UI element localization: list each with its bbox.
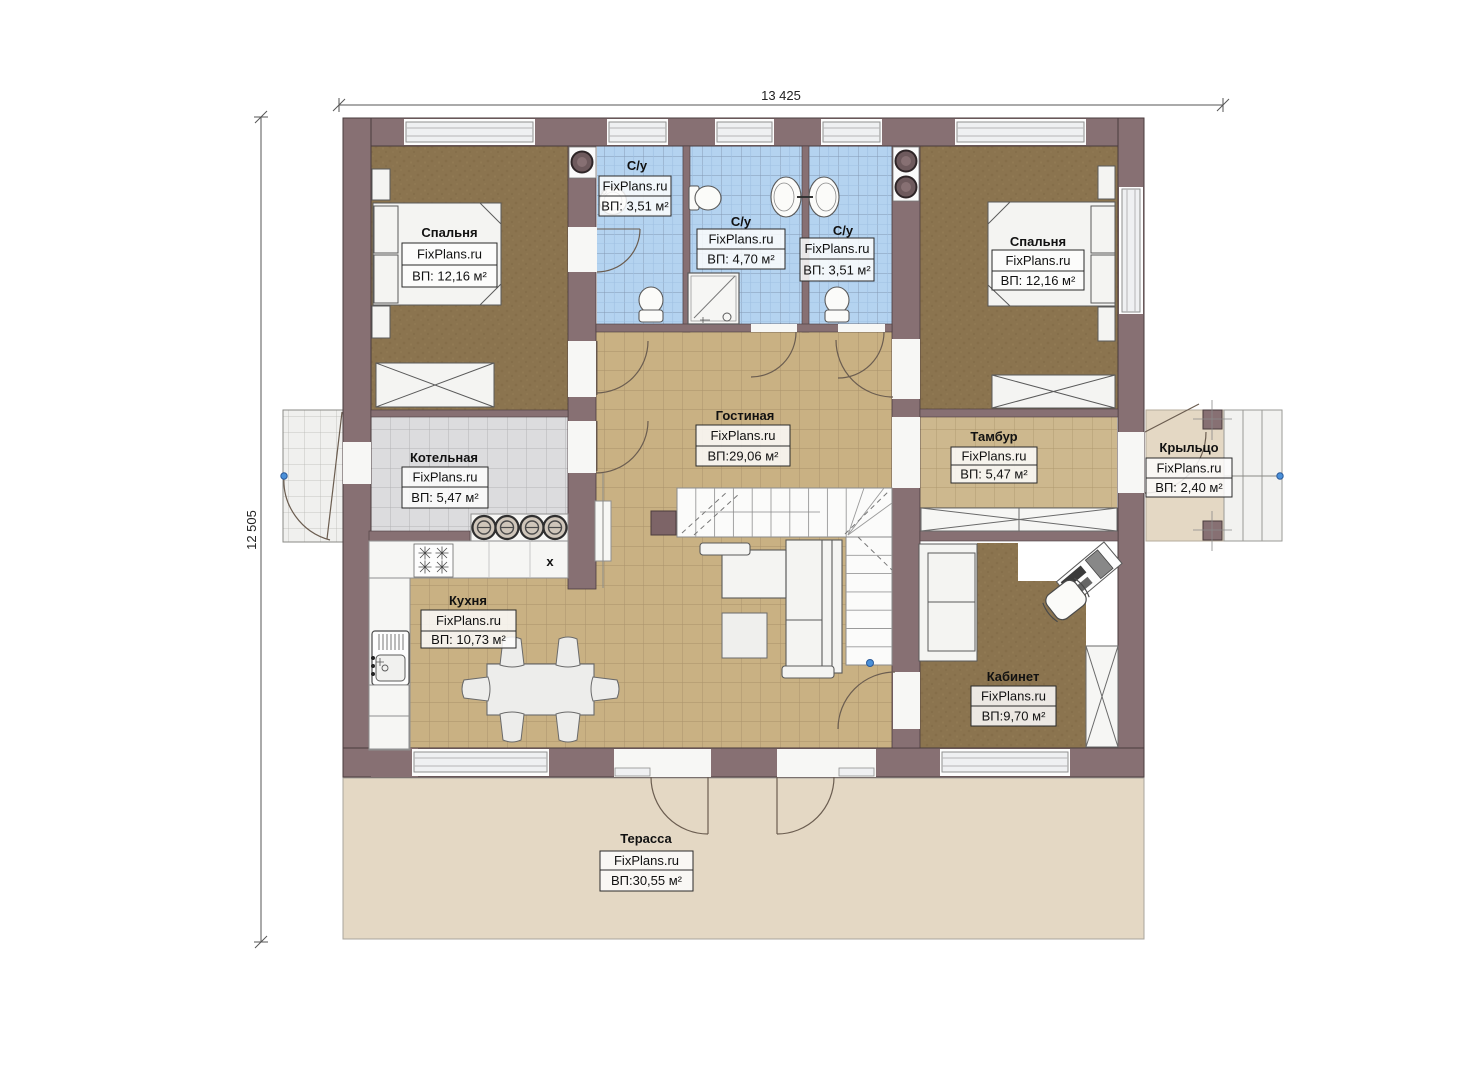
svg-text:FixPlans.ru: FixPlans.ru bbox=[417, 247, 482, 262]
svg-text:ВП:30,55 м²: ВП:30,55 м² bbox=[611, 873, 683, 888]
svg-text:Спальня: Спальня bbox=[421, 225, 477, 240]
svg-text:FixPlans.ru: FixPlans.ru bbox=[708, 232, 773, 247]
svg-text:Кабинет: Кабинет bbox=[987, 669, 1040, 684]
svg-text:ВП: 12,16 м²: ВП: 12,16 м² bbox=[1001, 273, 1076, 288]
svg-text:ВП:9,70 м²: ВП:9,70 м² bbox=[982, 709, 1046, 724]
svg-text:13 425: 13 425 bbox=[761, 88, 801, 103]
svg-text:FixPlans.ru: FixPlans.ru bbox=[614, 853, 679, 868]
svg-text:ВП: 3,51 м²: ВП: 3,51 м² bbox=[601, 199, 669, 214]
svg-text:ВП: 12,16 м²: ВП: 12,16 м² bbox=[412, 269, 487, 284]
svg-text:FixPlans.ru: FixPlans.ru bbox=[1005, 253, 1070, 268]
svg-text:ВП: 3,51 м²: ВП: 3,51 м² bbox=[803, 263, 871, 278]
svg-text:FixPlans.ru: FixPlans.ru bbox=[602, 179, 667, 194]
svg-text:12 505: 12 505 bbox=[244, 510, 259, 550]
svg-text:Терасса: Терасса bbox=[620, 831, 672, 846]
svg-text:FixPlans.ru: FixPlans.ru bbox=[981, 689, 1046, 704]
svg-text:ВП: 5,47 м²: ВП: 5,47 м² bbox=[960, 467, 1028, 482]
svg-text:ВП: 4,70 м²: ВП: 4,70 м² bbox=[707, 252, 775, 267]
svg-text:Котельная: Котельная bbox=[410, 450, 478, 465]
svg-text:Спальня: Спальня bbox=[1010, 234, 1066, 249]
svg-text:С/у: С/у bbox=[833, 223, 854, 238]
svg-text:FixPlans.ru: FixPlans.ru bbox=[710, 428, 775, 443]
svg-text:Гостиная: Гостиная bbox=[716, 408, 775, 423]
svg-text:FixPlans.ru: FixPlans.ru bbox=[412, 470, 477, 485]
svg-text:ВП:29,06 м²: ВП:29,06 м² bbox=[707, 449, 779, 464]
svg-text:Кухня: Кухня bbox=[449, 593, 487, 608]
svg-text:FixPlans.ru: FixPlans.ru bbox=[1156, 461, 1221, 476]
svg-text:FixPlans.ru: FixPlans.ru bbox=[436, 613, 501, 628]
svg-text:ВП: 2,40 м²: ВП: 2,40 м² bbox=[1155, 480, 1223, 495]
svg-text:x: x bbox=[546, 554, 554, 569]
svg-text:Тамбур: Тамбур bbox=[970, 429, 1017, 444]
svg-text:С/у: С/у bbox=[627, 158, 648, 173]
svg-text:FixPlans.ru: FixPlans.ru bbox=[961, 449, 1026, 464]
svg-text:FixPlans.ru: FixPlans.ru bbox=[804, 241, 869, 256]
svg-text:ВП: 5,47 м²: ВП: 5,47 м² bbox=[411, 490, 479, 505]
svg-text:Крыльцо: Крыльцо bbox=[1159, 440, 1218, 455]
svg-text:ВП: 10,73 м²: ВП: 10,73 м² bbox=[431, 632, 506, 647]
svg-text:С/у: С/у bbox=[731, 214, 752, 229]
